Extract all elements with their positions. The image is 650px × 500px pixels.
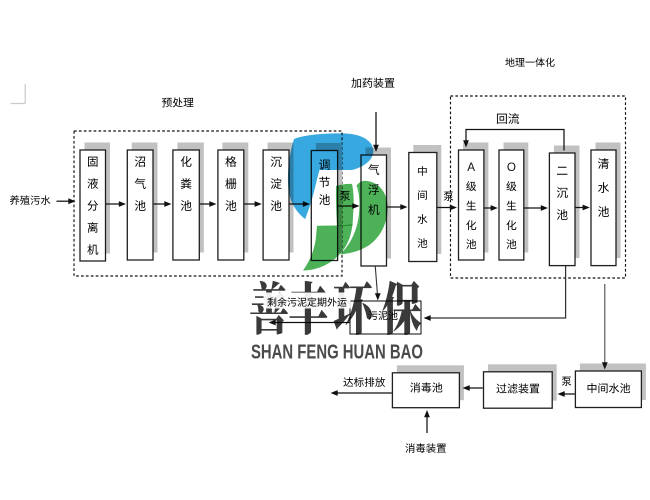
svg-text:O: O [507, 161, 516, 174]
svg-text:SHAN FENG HUAN BAO: SHAN FENG HUAN BAO [251, 342, 423, 364]
svg-text:A: A [467, 161, 475, 174]
